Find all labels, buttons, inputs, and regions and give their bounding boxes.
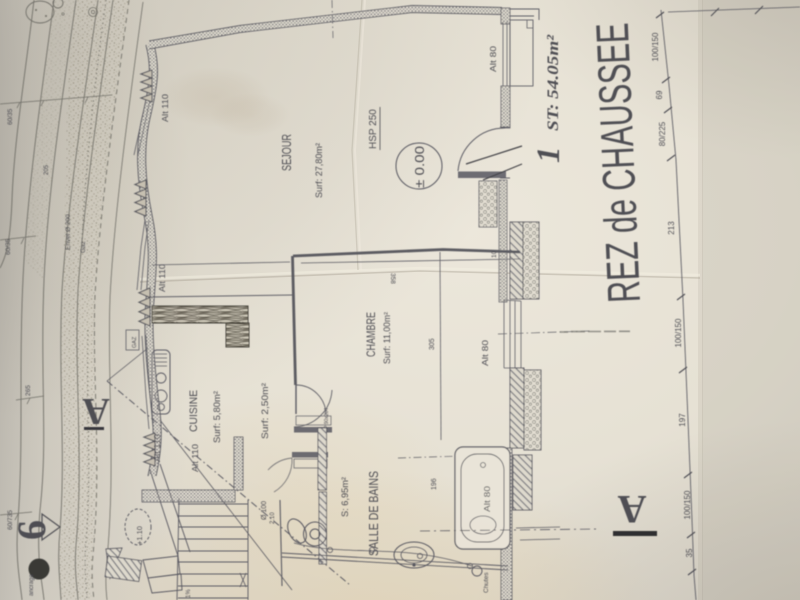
svg-text:+1.10: +1.10 <box>135 526 144 545</box>
svg-text:CHAMBRE: CHAMBRE <box>364 312 378 357</box>
svg-text:Ø 100: Ø 100 <box>261 501 268 520</box>
svg-text:6: 6 <box>9 520 54 540</box>
svg-text:A: A <box>82 390 110 432</box>
svg-text:80/225: 80/225 <box>658 121 667 146</box>
svg-text:HSP 250: HSP 250 <box>368 109 379 149</box>
svg-text:Surf: 11,00m²: Surf: 11,00m² <box>382 312 392 364</box>
svg-text:1: 1 <box>531 147 567 164</box>
svg-text:Alt 110: Alt 110 <box>157 264 167 292</box>
svg-text:SEJOUR: SEJOUR <box>280 134 294 171</box>
svg-text:Surf: 2,50m²: Surf: 2,50m² <box>260 383 271 439</box>
svg-text:305: 305 <box>429 338 436 350</box>
svg-text:Alt 110: Alt 110 <box>152 434 162 462</box>
svg-text:Gaz: Gaz <box>80 241 87 253</box>
svg-text:196: 196 <box>431 478 438 490</box>
svg-text:197: 197 <box>678 413 687 427</box>
svg-text:ancrage: ancrage <box>29 574 35 596</box>
svg-text:100/150: 100/150 <box>674 318 683 347</box>
svg-text:35: 35 <box>685 548 694 557</box>
svg-text:Alt 110: Alt 110 <box>160 94 170 122</box>
svg-text:± 0.00: ± 0.00 <box>413 146 427 188</box>
svg-text:Alt 80: Alt 80 <box>480 340 490 366</box>
svg-text:SALLE DE BAINS: SALLE DE BAINS <box>367 471 381 556</box>
svg-text:CUISINE: CUISINE <box>188 390 200 432</box>
svg-text:60/35: 60/35 <box>7 108 14 125</box>
svg-text:205: 205 <box>44 164 50 175</box>
svg-text:Surf: 27,80m²: Surf: 27,80m² <box>314 143 325 198</box>
svg-text:60/35: 60/35 <box>5 238 12 255</box>
svg-text:Surf: 5,80m²: Surf: 5,80m² <box>212 391 223 443</box>
svg-text:358: 358 <box>389 273 396 284</box>
svg-text:Alt 80: Alt 80 <box>488 46 498 72</box>
svg-text:GAZ: GAZ <box>132 336 138 348</box>
svg-text:Envel Ø 200: Envel Ø 200 <box>65 214 72 250</box>
svg-text:1%: 1% <box>186 589 192 598</box>
svg-text:10: 10 <box>491 250 498 258</box>
svg-text:265: 265 <box>25 385 32 396</box>
svg-text:ST: 54.05m²: ST: 54.05m² <box>545 34 562 131</box>
svg-text:213: 213 <box>667 221 676 235</box>
svg-text:Chutes: Chutes <box>483 572 490 593</box>
svg-text:69: 69 <box>655 90 664 99</box>
svg-text:100/150: 100/150 <box>683 490 692 519</box>
svg-text:A: A <box>617 487 646 532</box>
svg-text:Alt 80: Alt 80 <box>482 486 492 512</box>
svg-text:100/150: 100/150 <box>651 32 660 61</box>
svg-text:S: 6,95m²: S: 6,95m² <box>340 477 351 517</box>
